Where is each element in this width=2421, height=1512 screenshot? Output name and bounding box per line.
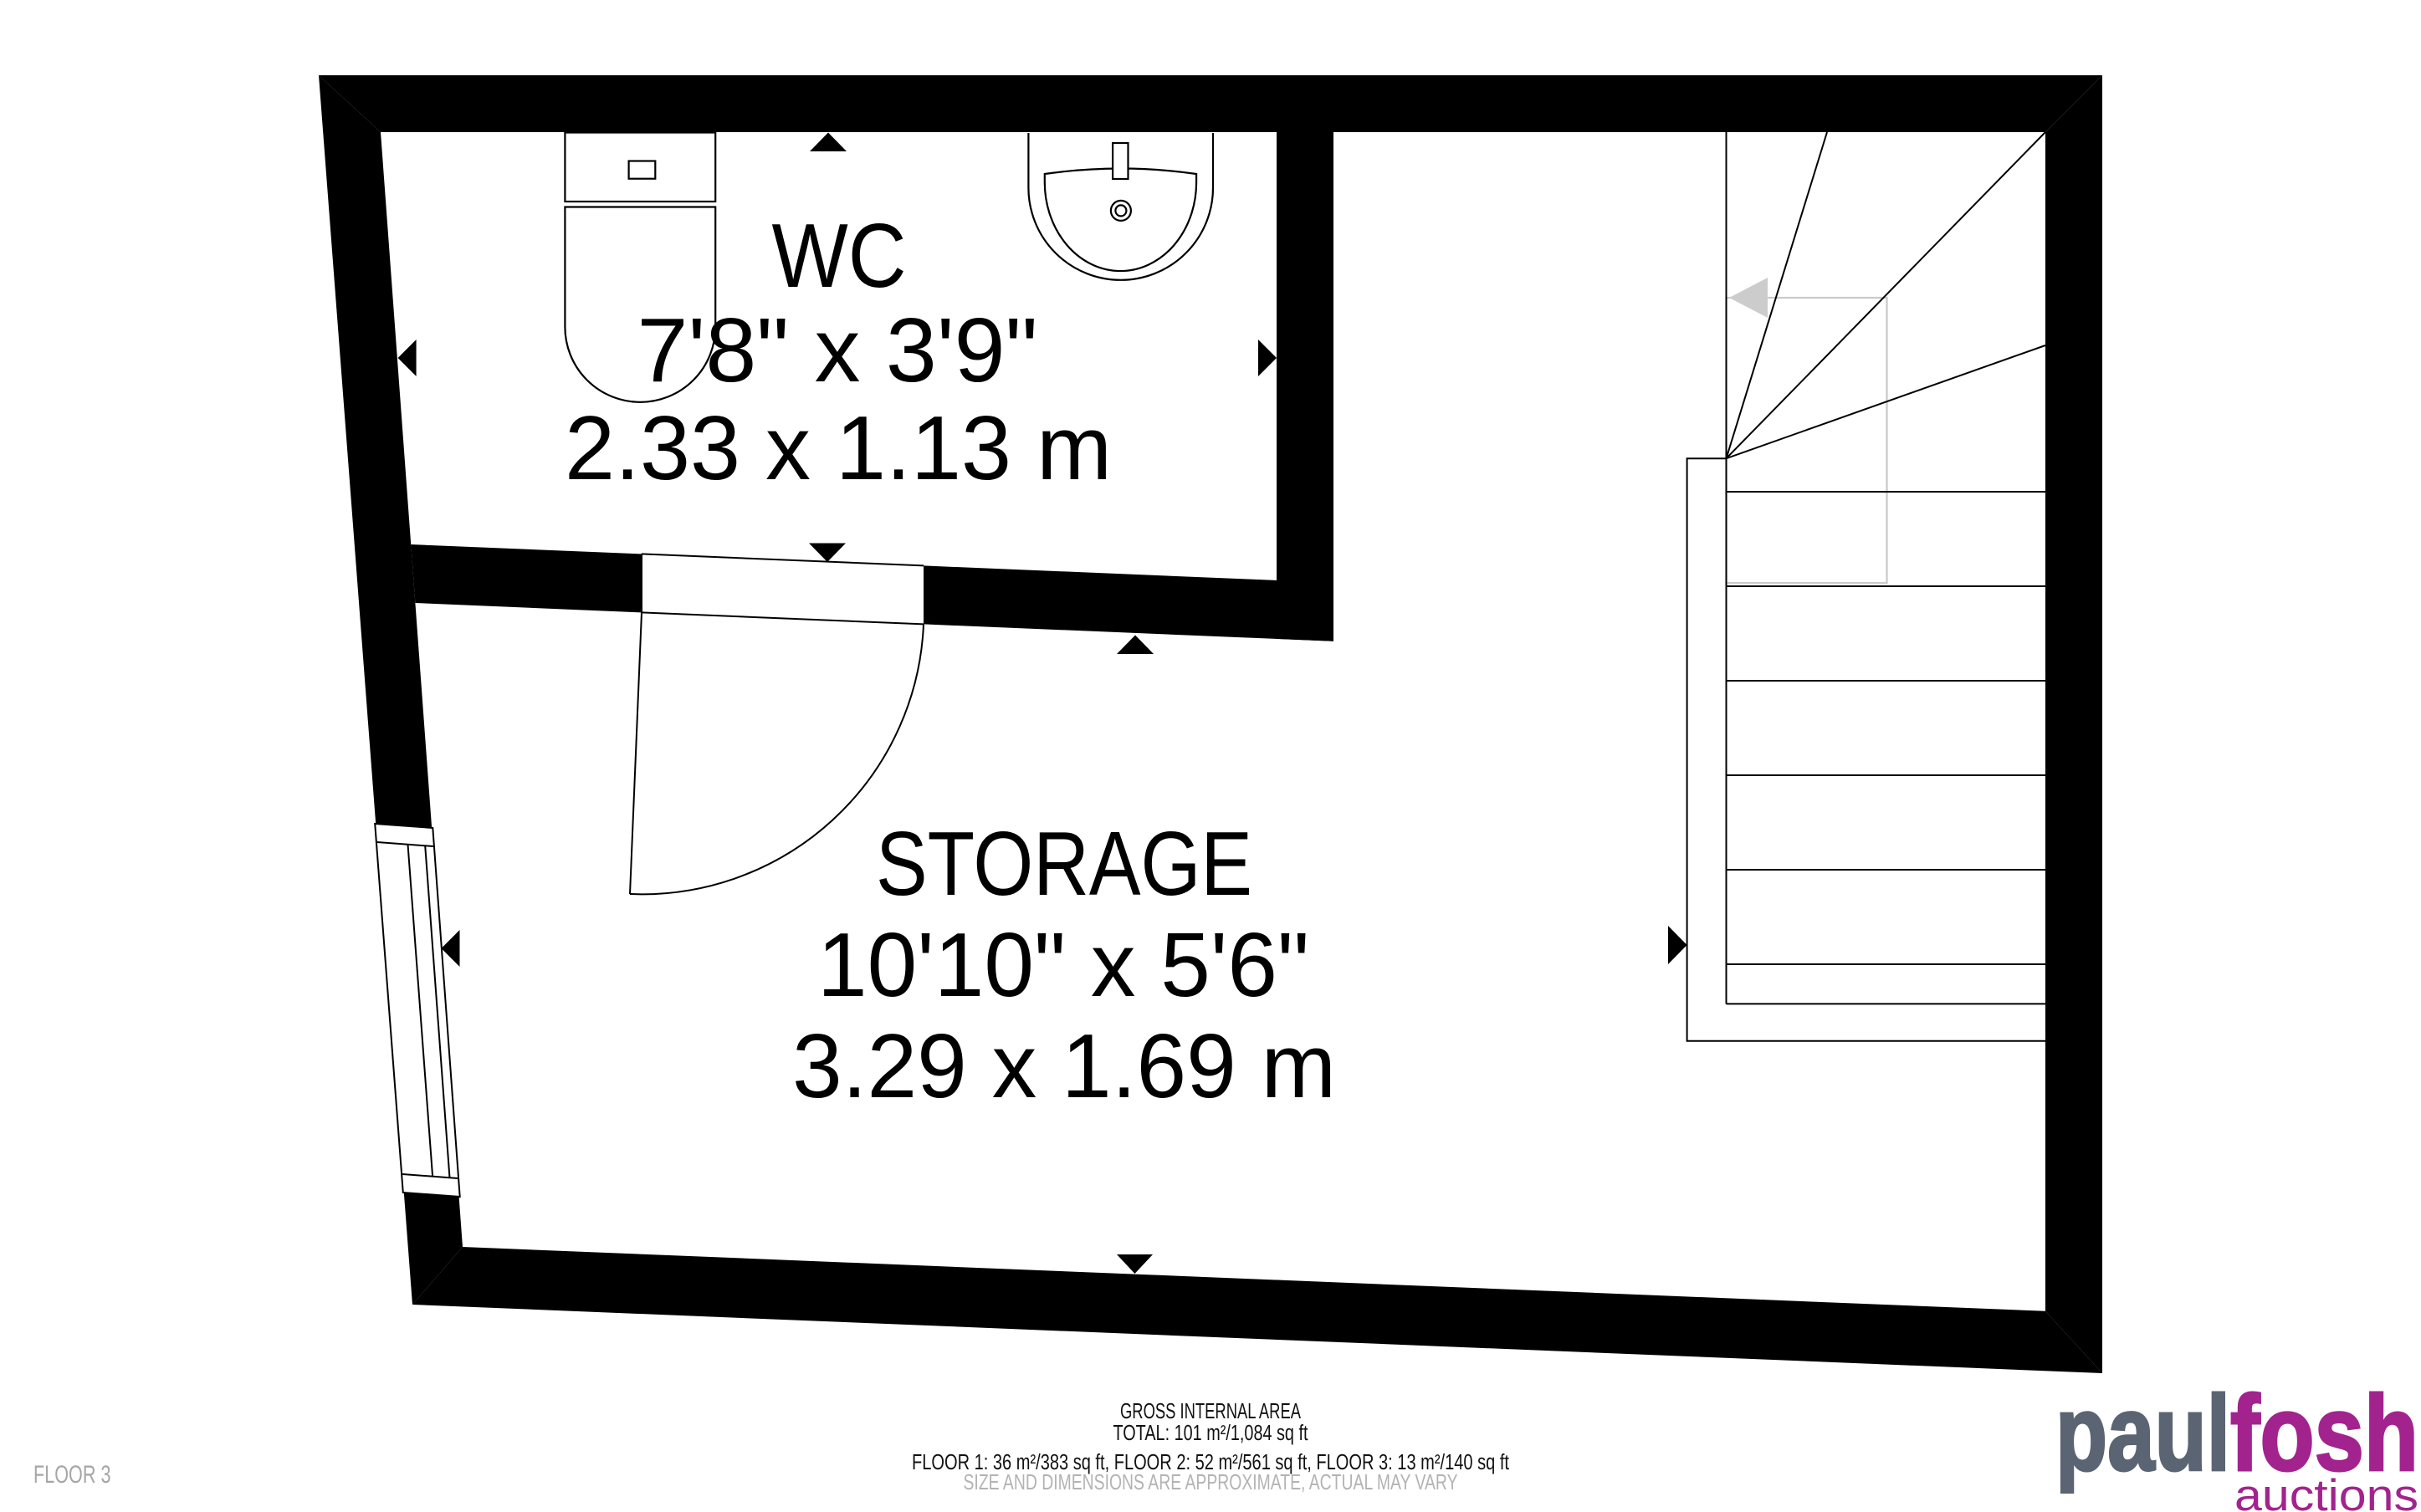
svg-text:FLOOR 3: FLOOR 3 <box>33 1461 111 1489</box>
svg-text:SIZE AND DIMENSIONS ARE APPROX: SIZE AND DIMENSIONS ARE APPROXIMATE, ACT… <box>964 1471 1458 1494</box>
svg-text:3.29 x 1.69 m: 3.29 x 1.69 m <box>792 1015 1336 1117</box>
svg-text:2.33 x 1.13 m: 2.33 x 1.13 m <box>565 397 1112 499</box>
svg-text:TOTAL: 101 m²/1,084 sq ft: TOTAL: 101 m²/1,084 sq ft <box>1113 1422 1308 1445</box>
svg-text:STORAGE: STORAGE <box>876 813 1252 915</box>
svg-text:10'10" x 5'6": 10'10" x 5'6" <box>817 914 1309 1016</box>
svg-text:WC: WC <box>772 205 907 307</box>
svg-text:auctions: auctions <box>2234 1471 2418 1512</box>
svg-text:GROSS INTERNAL AREA: GROSS INTERNAL AREA <box>1120 1400 1301 1423</box>
svg-text:7'8" x 3'9": 7'8" x 3'9" <box>637 299 1038 401</box>
svg-text:paul: paul <box>2055 1374 2230 1494</box>
